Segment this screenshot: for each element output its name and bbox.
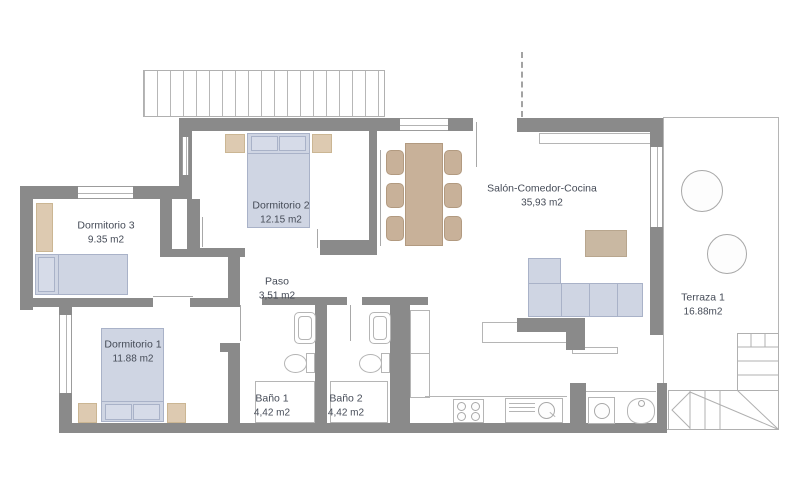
laundry-counter-edge xyxy=(586,391,656,392)
dining-chair xyxy=(444,183,462,208)
dining-chair xyxy=(386,183,404,208)
door-leaf xyxy=(476,122,477,167)
hob-burner xyxy=(471,402,480,411)
door-leaf xyxy=(350,305,351,341)
hob-burner xyxy=(457,402,466,411)
wall-segment xyxy=(160,249,202,257)
nightstand xyxy=(312,134,332,153)
room-area: 16.88m2 xyxy=(681,305,725,319)
room-area: 4,42 m2 xyxy=(328,406,364,420)
pergola-hatch xyxy=(143,70,385,117)
wall-segment xyxy=(362,297,400,305)
toilet-tank xyxy=(306,353,315,373)
room-label-dormitorio-3: Dormitorio 3 9.35 m2 xyxy=(77,220,134,247)
dining-table xyxy=(405,143,443,246)
dining-chair xyxy=(386,216,404,241)
room-name: Dormitorio 3 xyxy=(77,220,134,234)
room-area: 3,51 m2 xyxy=(259,289,295,303)
door-leaf xyxy=(380,150,381,246)
toilet-bowl xyxy=(359,354,382,373)
bed-line xyxy=(58,255,59,294)
hob-burner xyxy=(471,412,480,421)
terrace-chair xyxy=(707,234,747,274)
room-name: Dormitorio 1 xyxy=(104,339,161,353)
terrace-chair xyxy=(681,170,723,212)
wardrobe xyxy=(36,203,53,252)
kitchen-counter-edge xyxy=(425,396,567,397)
room-area: 4,42 m2 xyxy=(254,406,290,420)
kitchen-tall-units xyxy=(410,310,430,398)
room-name: Salón-Comedor-Cocina xyxy=(487,183,597,197)
floor-plan: Dormitorio 3 9.35 m2 Dormitorio 2 12.15 … xyxy=(0,0,800,500)
door-leaf xyxy=(202,217,203,247)
wall-segment xyxy=(327,297,347,305)
room-name: Baño 2 xyxy=(328,393,364,407)
kitchen-units-divider xyxy=(411,353,429,354)
washing-machine-drum xyxy=(594,403,610,419)
toilet-bowl xyxy=(284,354,307,373)
room-label-bano-1: Baño 1 4,42 m2 xyxy=(254,393,290,420)
nightstand xyxy=(78,403,97,423)
wall-segment xyxy=(315,297,327,427)
stairs xyxy=(668,333,780,430)
wall-segment xyxy=(650,118,663,147)
toilet-tank xyxy=(381,353,390,373)
bathroom-sink-basin xyxy=(298,316,312,340)
window xyxy=(182,137,189,175)
wall-segment xyxy=(220,343,240,352)
wall-segment xyxy=(133,186,192,199)
wall-segment xyxy=(448,118,473,131)
wall-segment xyxy=(20,186,33,310)
water-heater-dial xyxy=(638,400,645,407)
wall-segment xyxy=(517,118,663,132)
door-leaf xyxy=(153,296,193,297)
room-area: 35,93 m2 xyxy=(487,196,597,210)
nightstand xyxy=(167,403,186,423)
dining-chair xyxy=(386,150,404,175)
room-name: Terraza 1 xyxy=(681,292,725,306)
window xyxy=(78,186,133,199)
wall-segment xyxy=(566,318,585,350)
salon-window-sill xyxy=(539,133,651,144)
bed-line xyxy=(102,401,163,402)
room-area: 11.88 m2 xyxy=(104,352,161,366)
room-name: Baño 1 xyxy=(254,393,290,407)
wall-segment xyxy=(657,383,667,433)
room-name: Dormitorio 2 xyxy=(252,200,309,214)
door-leaf xyxy=(240,305,241,341)
room-label-bano-2: Baño 2 4,42 m2 xyxy=(328,393,364,420)
nightstand xyxy=(225,134,245,153)
wall-segment xyxy=(400,297,410,423)
wall-segment xyxy=(570,383,586,423)
drainer-line xyxy=(509,411,535,412)
wall-segment xyxy=(320,240,377,255)
wall-segment xyxy=(160,199,172,253)
room-label-paso: Paso 3,51 m2 xyxy=(259,276,295,303)
pillow xyxy=(133,404,160,420)
wall-segment xyxy=(20,298,153,307)
pillow xyxy=(38,257,55,292)
wall-segment xyxy=(369,131,377,240)
pillow xyxy=(251,136,278,151)
sofa-line xyxy=(589,284,590,316)
pillow xyxy=(279,136,306,151)
wall-segment xyxy=(59,423,663,433)
room-area: 12.15 m2 xyxy=(252,213,309,227)
kitchen-sink-bowl xyxy=(538,402,555,419)
room-label-dormitorio-1: Dormitorio 1 11.88 m2 xyxy=(104,339,161,366)
bathroom-sink-basin xyxy=(373,316,387,340)
window xyxy=(400,118,448,131)
window xyxy=(650,147,663,227)
wall-segment xyxy=(390,305,400,423)
sofa-line xyxy=(561,284,562,316)
sofa-line xyxy=(617,284,618,316)
room-area: 9.35 m2 xyxy=(77,233,134,247)
coffee-table xyxy=(585,230,627,257)
pillow xyxy=(105,404,132,420)
hob-burner xyxy=(457,412,466,421)
wall-segment xyxy=(59,298,72,315)
door-leaf xyxy=(317,229,318,248)
drainer-line xyxy=(509,407,535,408)
boundary-dashed-line xyxy=(521,52,523,117)
bed-line xyxy=(248,153,309,154)
wall-segment xyxy=(228,248,240,303)
drainer-line xyxy=(509,403,535,404)
dining-chair xyxy=(444,216,462,241)
room-label-terraza: Terraza 1 16.88m2 xyxy=(681,292,725,319)
wall-segment xyxy=(650,227,663,335)
dining-chair xyxy=(444,150,462,175)
wall-segment xyxy=(179,118,400,131)
window xyxy=(59,315,72,393)
sofa xyxy=(528,283,643,317)
room-label-dormitorio-2: Dormitorio 2 12.15 m2 xyxy=(252,200,309,227)
room-name: Paso xyxy=(259,276,295,290)
room-label-salon: Salón-Comedor-Cocina 35,93 m2 xyxy=(487,183,597,210)
wall-segment xyxy=(228,352,240,423)
